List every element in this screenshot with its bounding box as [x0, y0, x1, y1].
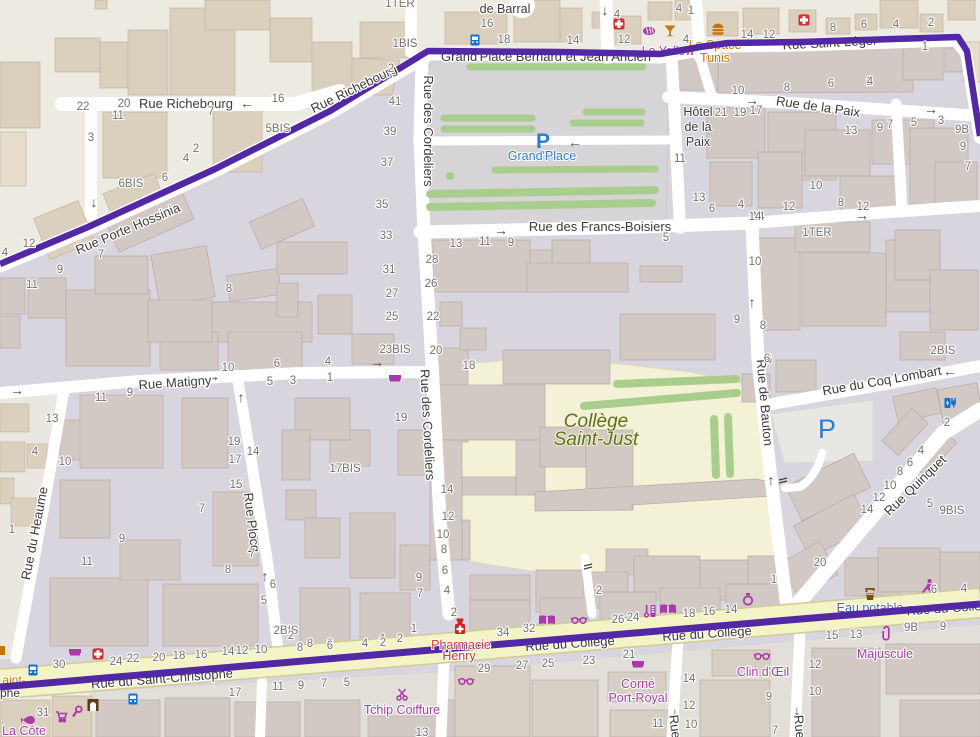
- svg-text:7: 7: [417, 588, 423, 600]
- svg-text:9: 9: [119, 533, 125, 545]
- svg-text:2: 2: [928, 17, 934, 29]
- svg-text:5: 5: [261, 595, 267, 607]
- svg-text:27: 27: [386, 288, 399, 300]
- svg-text:4: 4: [32, 446, 39, 458]
- svg-text:P: P: [818, 414, 836, 444]
- svg-text:7: 7: [321, 678, 327, 690]
- svg-text:7: 7: [249, 548, 255, 560]
- svg-text:Majuscule: Majuscule: [857, 647, 913, 661]
- svg-text:31: 31: [383, 264, 396, 276]
- svg-text:→: →: [924, 101, 938, 117]
- svg-text:12: 12: [683, 700, 696, 712]
- svg-text:7: 7: [208, 106, 214, 118]
- svg-text:9B: 9B: [955, 124, 969, 136]
- svg-text:13: 13: [693, 192, 706, 204]
- svg-text:4: 4: [676, 3, 683, 15]
- svg-text:17BIS: 17BIS: [329, 463, 361, 475]
- svg-text:21: 21: [715, 107, 728, 119]
- svg-text:4: 4: [867, 76, 874, 88]
- svg-text:11: 11: [26, 279, 38, 291]
- svg-text:Tunis: Tunis: [700, 51, 730, 65]
- svg-text:31: 31: [37, 707, 50, 719]
- svg-text:16: 16: [272, 93, 285, 105]
- svg-text:5: 5: [267, 376, 273, 388]
- svg-text:15: 15: [826, 630, 839, 642]
- svg-text:1: 1: [411, 623, 417, 635]
- svg-text:Clin d'Œil: Clin d'Œil: [737, 665, 789, 679]
- svg-text:13: 13: [850, 629, 863, 641]
- svg-text:33: 33: [380, 230, 393, 242]
- svg-text:9: 9: [416, 572, 422, 584]
- svg-text:9: 9: [57, 264, 63, 276]
- svg-text:Henry: Henry: [442, 649, 476, 663]
- svg-text:22: 22: [127, 653, 140, 665]
- svg-text:5: 5: [344, 677, 350, 689]
- svg-text:14: 14: [222, 646, 235, 658]
- svg-text:11: 11: [652, 718, 664, 730]
- svg-text:9: 9: [960, 141, 966, 153]
- svg-text:7: 7: [965, 161, 971, 173]
- svg-text:6: 6: [828, 78, 834, 90]
- svg-text:4: 4: [614, 9, 621, 21]
- svg-text:8: 8: [830, 22, 836, 34]
- svg-text:La Côte: La Côte: [2, 724, 46, 737]
- svg-text:11: 11: [272, 681, 284, 693]
- svg-text:22: 22: [427, 311, 440, 323]
- svg-text:12: 12: [809, 659, 822, 671]
- svg-text:8: 8: [838, 197, 844, 209]
- svg-text:12: 12: [442, 511, 455, 523]
- svg-text:→: →: [370, 354, 384, 370]
- svg-text:24: 24: [627, 612, 640, 624]
- svg-text:Saint-Just: Saint-Just: [554, 429, 639, 450]
- svg-text:30: 30: [53, 659, 66, 671]
- svg-text:10: 10: [810, 180, 823, 192]
- svg-text:28: 28: [426, 254, 439, 266]
- svg-text:35: 35: [376, 199, 389, 211]
- svg-text:10: 10: [437, 529, 450, 541]
- svg-text:Rue Richebourg: Rue Richebourg: [139, 96, 233, 111]
- svg-text:8: 8: [784, 82, 790, 94]
- svg-text:13: 13: [46, 413, 59, 425]
- svg-text:5: 5: [663, 232, 669, 244]
- svg-text:12: 12: [763, 29, 776, 41]
- svg-text:6: 6: [442, 565, 448, 577]
- svg-text:9: 9: [734, 314, 740, 326]
- svg-text:Rue: Rue: [791, 714, 808, 737]
- svg-text:10: 10: [59, 456, 72, 468]
- svg-text:41: 41: [389, 96, 402, 108]
- svg-text:Hôtel: Hôtel: [683, 105, 712, 119]
- svg-text:12: 12: [873, 492, 886, 504]
- svg-text:29: 29: [478, 663, 491, 675]
- svg-text:4: 4: [961, 583, 968, 595]
- svg-text:↑: ↑: [238, 389, 245, 405]
- svg-text:9: 9: [298, 680, 304, 692]
- svg-text:23: 23: [583, 655, 596, 667]
- svg-text:6BIS: 6BIS: [119, 178, 144, 190]
- svg-text:16: 16: [195, 649, 208, 661]
- svg-text:4: 4: [444, 585, 451, 597]
- svg-text:8: 8: [760, 320, 766, 332]
- svg-text:24: 24: [110, 656, 123, 668]
- svg-text:14: 14: [725, 604, 738, 616]
- svg-text:de la: de la: [684, 120, 711, 134]
- svg-text:12: 12: [857, 201, 870, 213]
- svg-text:7: 7: [199, 503, 205, 515]
- svg-text:17: 17: [229, 454, 242, 466]
- svg-text:26: 26: [612, 614, 625, 626]
- svg-text:1: 1: [9, 524, 15, 536]
- svg-text:6: 6: [709, 203, 715, 215]
- svg-text:11: 11: [479, 236, 491, 248]
- svg-text:10: 10: [749, 256, 762, 268]
- svg-text:2: 2: [596, 585, 602, 597]
- svg-text:14: 14: [683, 673, 696, 685]
- svg-text:16: 16: [703, 606, 716, 618]
- svg-text:6: 6: [274, 358, 280, 370]
- svg-text:8: 8: [297, 642, 303, 654]
- svg-text:19: 19: [734, 107, 747, 119]
- svg-text:1: 1: [327, 372, 333, 384]
- svg-text:4: 4: [683, 34, 690, 46]
- svg-text:2: 2: [388, 63, 394, 75]
- svg-text:10: 10: [884, 480, 897, 492]
- svg-text:10: 10: [809, 686, 822, 698]
- svg-text:Rue des Francs-Boisiers: Rue des Francs-Boisiers: [529, 219, 672, 234]
- svg-text:7: 7: [772, 725, 778, 737]
- svg-text:7: 7: [98, 249, 104, 261]
- svg-text:1BIS: 1BIS: [393, 38, 418, 50]
- svg-text:2: 2: [944, 417, 950, 429]
- svg-text:12: 12: [236, 645, 249, 657]
- svg-text:21: 21: [623, 649, 636, 661]
- svg-text:4: 4: [362, 638, 369, 650]
- svg-text:↑: ↑: [749, 294, 756, 310]
- svg-text:12: 12: [783, 201, 796, 213]
- svg-text:20: 20: [430, 345, 443, 357]
- svg-text:→: →: [10, 382, 24, 398]
- svg-text:8: 8: [441, 544, 447, 556]
- svg-text:11: 11: [674, 153, 686, 165]
- svg-text:13: 13: [416, 727, 429, 737]
- svg-text:6: 6: [162, 172, 168, 184]
- svg-text:32: 32: [523, 623, 536, 635]
- svg-text:22: 22: [77, 101, 90, 113]
- svg-text:←: ←: [568, 134, 582, 150]
- svg-text:5: 5: [911, 117, 917, 129]
- svg-text:14: 14: [441, 484, 454, 496]
- svg-text:3: 3: [290, 375, 296, 387]
- svg-text:26: 26: [425, 278, 438, 290]
- svg-text:12: 12: [618, 34, 631, 46]
- svg-text:2: 2: [193, 143, 199, 155]
- svg-text:Paix: Paix: [686, 135, 711, 149]
- svg-text:11: 11: [112, 110, 124, 122]
- svg-text:20: 20: [814, 557, 827, 569]
- svg-text:de Barral: de Barral: [480, 2, 531, 16]
- svg-text:6: 6: [907, 457, 913, 469]
- svg-text:8: 8: [307, 638, 313, 650]
- svg-text:17: 17: [229, 687, 242, 699]
- svg-text:←: ←: [943, 363, 957, 379]
- svg-text:9BIS: 9BIS: [940, 505, 965, 517]
- svg-text:1TER: 1TER: [802, 227, 831, 239]
- svg-text:Grand'Place: Grand'Place: [508, 149, 576, 163]
- svg-text:6: 6: [270, 579, 276, 591]
- svg-text:4: 4: [325, 356, 332, 368]
- svg-text:15: 15: [230, 479, 243, 491]
- svg-text:1: 1: [688, 5, 694, 17]
- svg-text:4: 4: [893, 19, 900, 31]
- svg-text:20: 20: [153, 652, 166, 664]
- svg-text:18: 18: [463, 360, 476, 372]
- svg-text:14: 14: [749, 211, 762, 223]
- svg-text:27: 27: [516, 660, 529, 672]
- svg-text:19: 19: [228, 436, 241, 448]
- svg-text:20: 20: [118, 98, 131, 110]
- svg-text:↓: ↓: [602, 2, 609, 18]
- svg-text:16: 16: [481, 18, 494, 30]
- svg-text:14: 14: [741, 29, 754, 41]
- svg-text:9: 9: [508, 237, 514, 249]
- svg-text:1TER: 1TER: [385, 0, 414, 10]
- svg-text:14: 14: [861, 504, 874, 516]
- svg-text:39: 39: [384, 126, 397, 138]
- svg-text:6: 6: [861, 19, 867, 31]
- svg-text:25: 25: [542, 658, 555, 670]
- svg-text:Tchip Coiffure: Tchip Coiffure: [364, 703, 440, 717]
- svg-text:Port-Royal: Port-Royal: [608, 691, 667, 705]
- svg-text:2: 2: [288, 630, 294, 642]
- svg-text:→: →: [494, 222, 508, 238]
- svg-text:5: 5: [927, 498, 933, 510]
- svg-text:1: 1: [922, 41, 928, 53]
- svg-text:19: 19: [395, 412, 408, 424]
- svg-text:4: 4: [918, 445, 925, 457]
- svg-text:9: 9: [940, 621, 946, 633]
- svg-text:2BIS: 2BIS: [931, 345, 956, 357]
- svg-text:4: 4: [2, 247, 9, 259]
- svg-text:14: 14: [247, 446, 260, 458]
- svg-text:34: 34: [497, 627, 510, 639]
- svg-text:2BIS: 2BIS: [274, 625, 299, 637]
- svg-text:←: ←: [867, 30, 881, 46]
- svg-text:13: 13: [450, 238, 463, 250]
- svg-text:6: 6: [764, 353, 770, 365]
- svg-text:11: 11: [95, 392, 107, 404]
- svg-text:↑: ↑: [768, 472, 775, 488]
- svg-text:23BIS: 23BIS: [379, 344, 411, 356]
- svg-text:11: 11: [81, 556, 93, 568]
- svg-text:8: 8: [897, 466, 903, 478]
- svg-text:↑: ↑: [262, 568, 269, 584]
- svg-text:6: 6: [327, 640, 333, 652]
- svg-text:5BIS: 5BIS: [266, 123, 291, 135]
- svg-text:17: 17: [750, 105, 763, 117]
- svg-text:2: 2: [451, 607, 457, 619]
- svg-text:10: 10: [685, 719, 698, 731]
- svg-text:8: 8: [225, 564, 231, 576]
- svg-text:Rue des Cordeliers: Rue des Cordeliers: [421, 75, 436, 187]
- svg-text:2: 2: [397, 633, 403, 645]
- svg-text:37: 37: [381, 157, 394, 169]
- svg-text:4: 4: [738, 199, 745, 211]
- svg-text:9: 9: [877, 122, 883, 134]
- svg-text:8: 8: [226, 283, 232, 295]
- svg-text:9B: 9B: [904, 622, 918, 634]
- svg-text:14: 14: [567, 35, 580, 47]
- svg-text:9: 9: [766, 691, 772, 703]
- svg-text:18: 18: [683, 608, 696, 620]
- svg-text:18: 18: [498, 34, 511, 46]
- svg-text:18: 18: [173, 650, 186, 662]
- svg-text:13: 13: [845, 125, 858, 137]
- svg-text:12: 12: [23, 238, 36, 250]
- svg-text:←: ←: [240, 95, 254, 111]
- svg-text:2: 2: [380, 637, 386, 649]
- svg-text:Corné: Corné: [621, 677, 655, 691]
- svg-text:6: 6: [931, 584, 937, 596]
- svg-text:4: 4: [183, 153, 190, 165]
- svg-text:10: 10: [255, 644, 268, 656]
- svg-text:25: 25: [386, 311, 399, 323]
- svg-text:7: 7: [887, 119, 893, 131]
- svg-text:3: 3: [88, 132, 94, 144]
- svg-text:↓: ↓: [91, 194, 98, 210]
- svg-text:3: 3: [938, 115, 944, 127]
- svg-text:9: 9: [127, 387, 133, 399]
- svg-text:10: 10: [732, 85, 745, 97]
- svg-text:10: 10: [222, 362, 235, 374]
- svg-text:1: 1: [771, 574, 777, 586]
